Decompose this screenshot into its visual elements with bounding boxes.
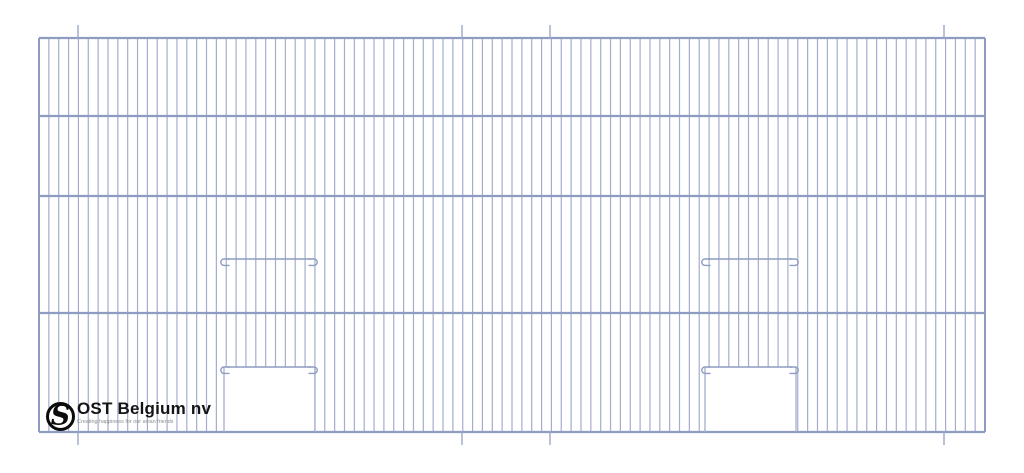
cage-front-drawing: S OST Belgium nv Creating happiness for … xyxy=(0,0,1024,473)
company-name: OST Belgium nv xyxy=(77,399,219,418)
company-tagline: Creating happiness for our avian friends xyxy=(77,419,173,424)
ost-monogram-icon: S xyxy=(46,402,75,431)
sliding-door-right xyxy=(702,259,798,432)
vertical-wires xyxy=(49,38,975,432)
logo-text-block: OST Belgium nv Creating happiness for ou… xyxy=(77,399,219,427)
company-logo: S OST Belgium nv Creating happiness for … xyxy=(46,399,219,431)
monogram-letter: S xyxy=(51,402,71,429)
section-tick-marks xyxy=(78,25,944,445)
sliding-door-left xyxy=(221,259,317,432)
